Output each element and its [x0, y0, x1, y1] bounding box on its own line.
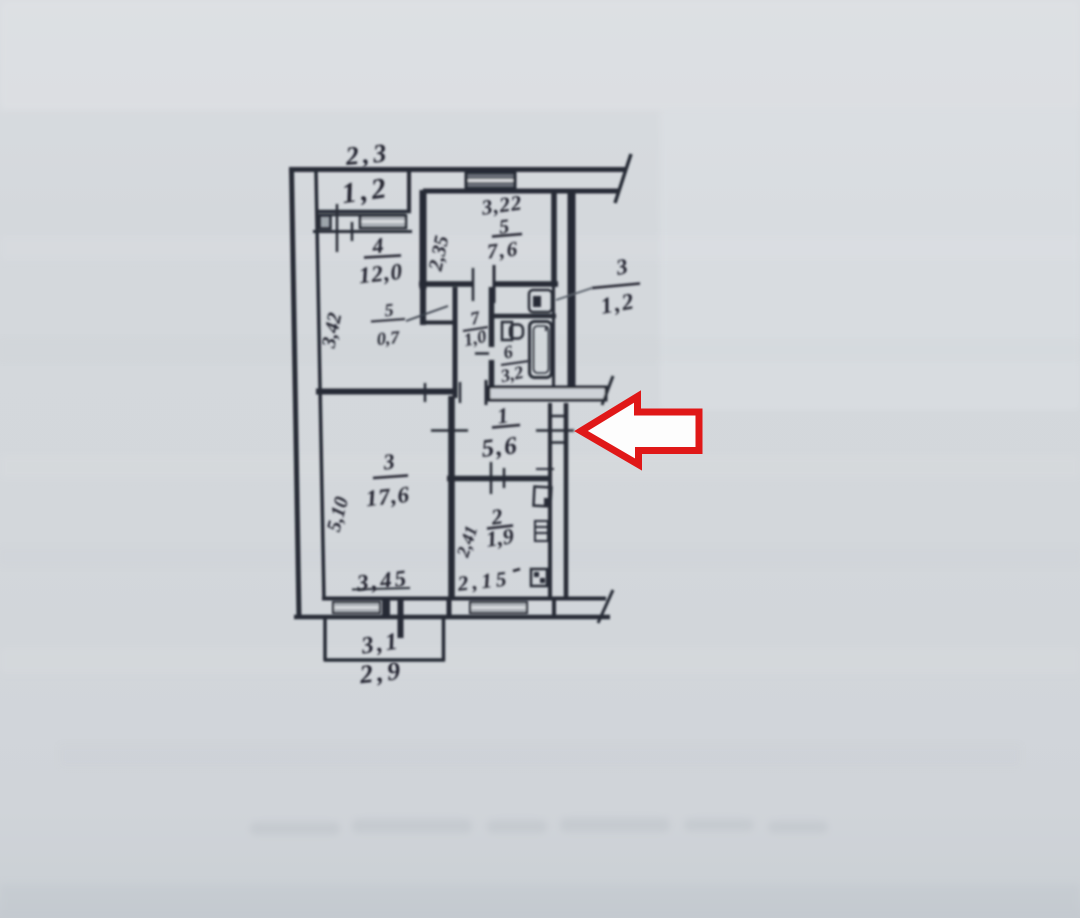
svg-text:3,1: 3,1 — [359, 628, 402, 659]
svg-text:0,7: 0,7 — [376, 327, 401, 349]
svg-text:12,0: 12,0 — [358, 259, 405, 288]
svg-text:2,3: 2,3 — [343, 138, 391, 171]
svg-text:2,9: 2,9 — [357, 656, 405, 690]
svg-text:5: 5 — [384, 300, 395, 321]
svg-text:7,6: 7,6 — [486, 236, 521, 263]
svg-text:5,6: 5,6 — [480, 432, 520, 463]
svg-text:1,9: 1,9 — [485, 523, 516, 552]
svg-text:1,2: 1,2 — [340, 172, 392, 210]
svg-text:17,6: 17,6 — [365, 482, 412, 511]
